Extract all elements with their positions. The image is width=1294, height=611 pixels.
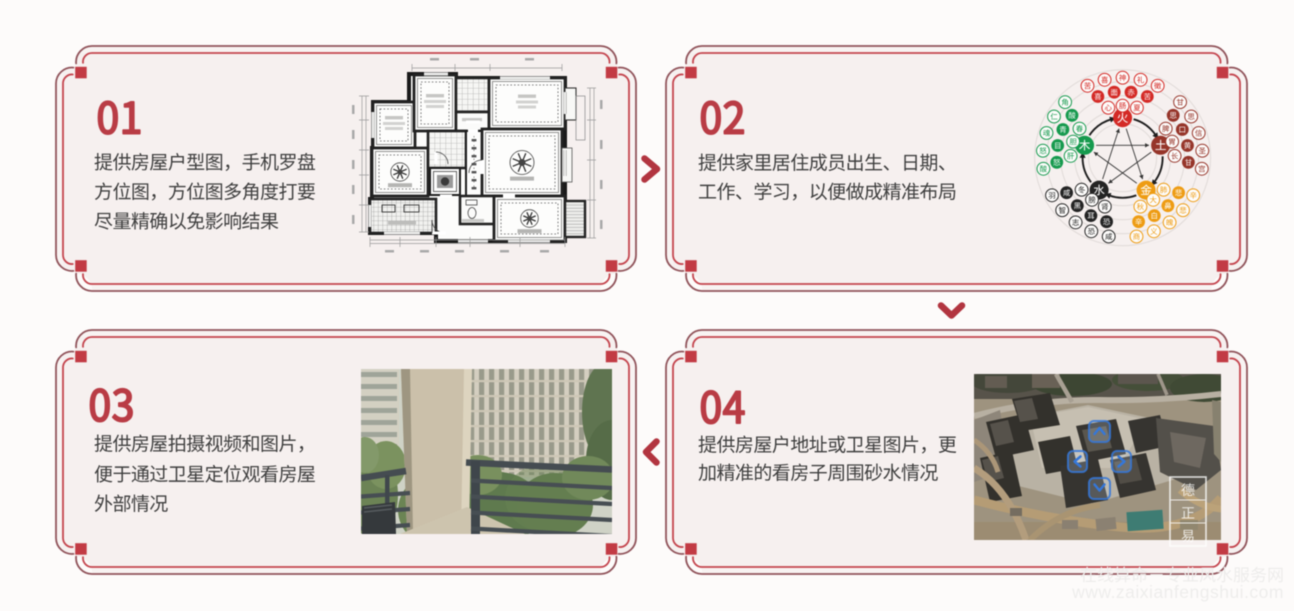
svg-text:www.zaixianfengshui.com: www.zaixianfengshui.com (1071, 582, 1284, 602)
